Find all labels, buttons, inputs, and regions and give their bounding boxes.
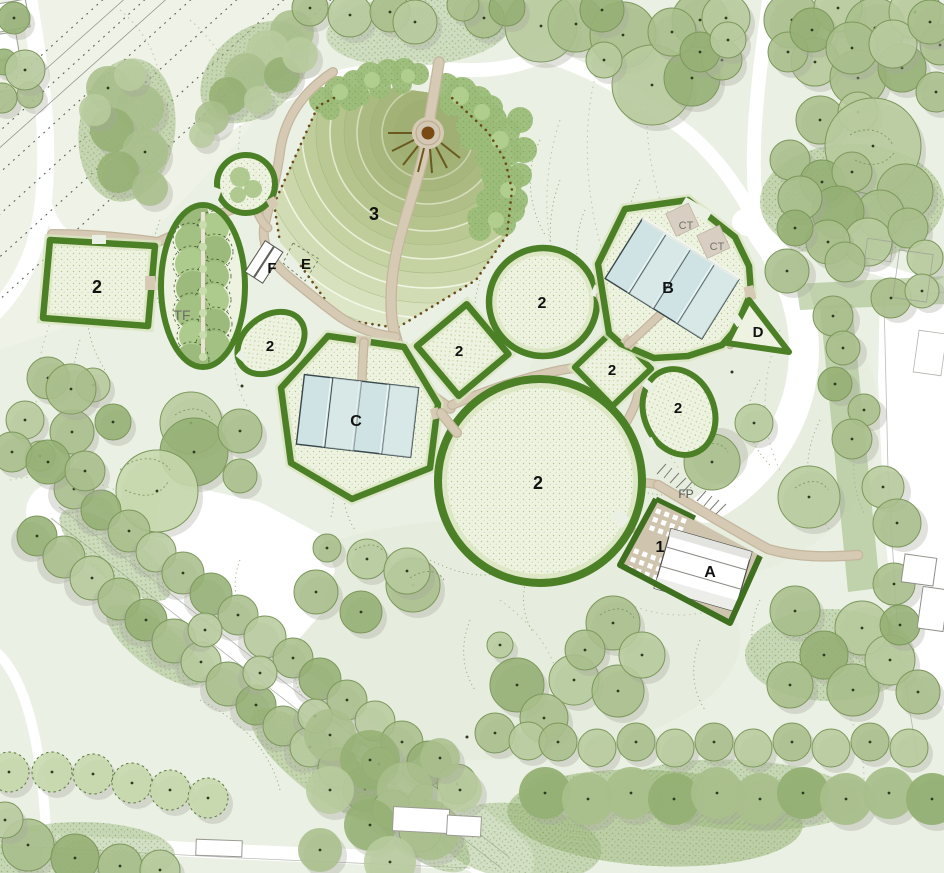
svg-text:2: 2 xyxy=(538,295,547,312)
svg-text:A: A xyxy=(704,564,716,581)
svg-text:3: 3 xyxy=(369,204,379,224)
svg-text:B: B xyxy=(662,280,674,297)
svg-text:2: 2 xyxy=(266,338,274,355)
svg-text:C: C xyxy=(350,413,362,430)
svg-text:D: D xyxy=(753,324,764,341)
svg-text:FP: FP xyxy=(678,487,693,501)
svg-text:2: 2 xyxy=(455,343,463,360)
svg-text:2: 2 xyxy=(92,277,102,297)
svg-text:CT: CT xyxy=(710,241,725,253)
svg-text:2: 2 xyxy=(608,362,616,379)
svg-text:E: E xyxy=(301,256,311,273)
svg-text:1: 1 xyxy=(656,539,665,556)
svg-text:TF: TF xyxy=(173,307,190,323)
svg-text:2: 2 xyxy=(533,473,543,493)
svg-text:2: 2 xyxy=(674,400,682,417)
svg-text:CT: CT xyxy=(679,220,694,232)
svg-text:F: F xyxy=(267,260,276,277)
